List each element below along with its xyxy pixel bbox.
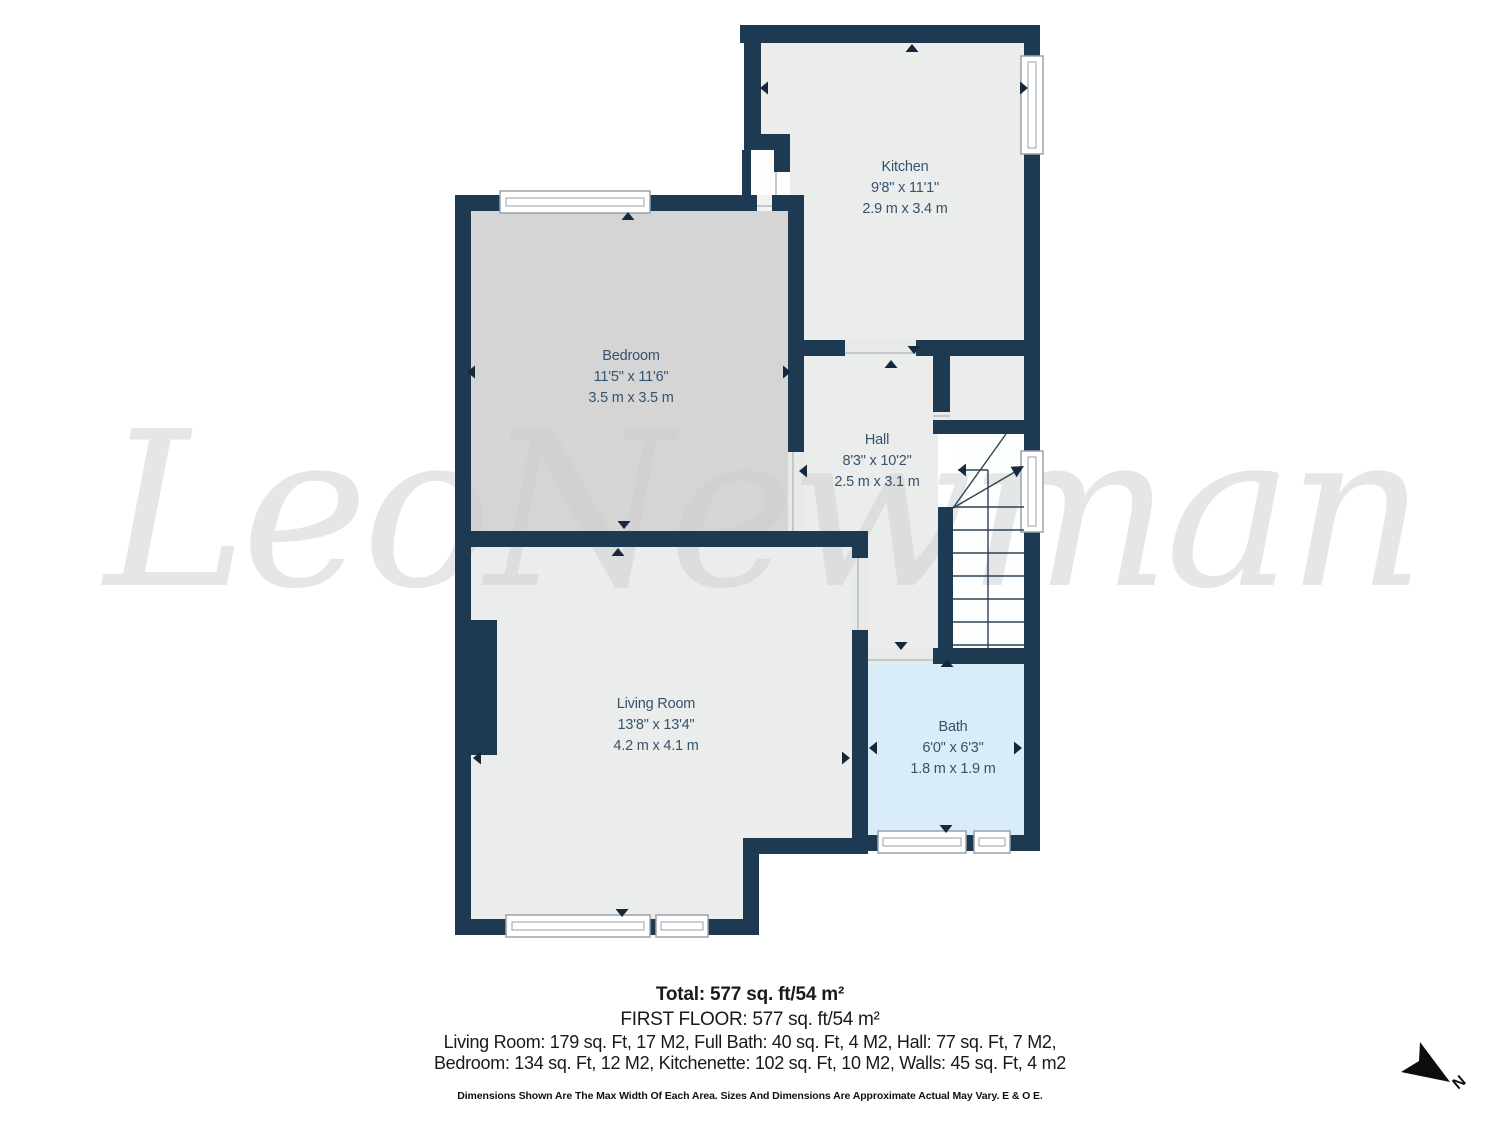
hall-metric: 2.5 m x 3.1 m	[834, 472, 919, 493]
living-window-wide	[506, 915, 650, 937]
hall-name: Hall	[834, 430, 919, 451]
living-room-label: Living Room 13'8" x 13'4" 4.2 m x 4.1 m	[613, 694, 698, 757]
stairs-window	[1021, 451, 1043, 532]
floorplan-page: LeoNewman	[0, 0, 1500, 1125]
watermark-text: LeoNewman	[100, 385, 1419, 636]
floor-area-text: FIRST FLOOR: 577 sq. ft/54 m²	[0, 1007, 1500, 1032]
bath-metric: 1.8 m x 1.9 m	[910, 759, 995, 780]
room-areas-line-1: Living Room: 179 sq. Ft, 17 M2, Full Bat…	[0, 1032, 1500, 1053]
bath-label: Bath 6'0" x 6'3" 1.8 m x 1.9 m	[910, 717, 995, 780]
room-areas-line-2: Bedroom: 134 sq. Ft, 12 M2, Kitchenette:…	[0, 1053, 1500, 1074]
living-room-name: Living Room	[613, 694, 698, 715]
hall-imperial: 8'3" x 10'2"	[834, 451, 919, 472]
kitchen-label: Kitchen 9'8" x 11'1" 2.9 m x 3.4 m	[862, 157, 947, 220]
north-arrow-icon: N	[1398, 1032, 1488, 1112]
bath-imperial: 6'0" x 6'3"	[910, 738, 995, 759]
bedroom-imperial: 11'5" x 11'6"	[588, 367, 673, 388]
disclaimer-text: Dimensions Shown Are The Max Width Of Ea…	[0, 1090, 1500, 1102]
bath-window-wide	[878, 831, 966, 853]
kitchen-metric: 2.9 m x 3.4 m	[862, 199, 947, 220]
bedroom-name: Bedroom	[588, 346, 673, 367]
north-label: N	[1450, 1073, 1470, 1093]
floorplan-drawing: LeoNewman	[0, 0, 1500, 1125]
bedroom-metric: 3.5 m x 3.5 m	[588, 388, 673, 409]
kitchen-imperial: 9'8" x 11'1"	[862, 178, 947, 199]
bath-window-narrow	[974, 831, 1010, 853]
bedroom-label: Bedroom 11'5" x 11'6" 3.5 m x 3.5 m	[588, 346, 673, 409]
living-room-imperial: 13'8" x 13'4"	[613, 715, 698, 736]
total-area-text: Total: 577 sq. ft/54 m²	[0, 982, 1500, 1007]
living-window-narrow	[656, 915, 708, 937]
living-room-metric: 4.2 m x 4.1 m	[613, 736, 698, 757]
north-arrow-needle	[1401, 1042, 1450, 1082]
chimney-breast	[471, 620, 497, 755]
area-summary: Total: 577 sq. ft/54 m² FIRST FLOOR: 577…	[0, 982, 1500, 1102]
bedroom-window	[500, 191, 650, 213]
kitchen-name: Kitchen	[862, 157, 947, 178]
hall-label: Hall 8'3" x 10'2" 2.5 m x 3.1 m	[834, 430, 919, 493]
kitchen-window	[1021, 56, 1043, 154]
bath-name: Bath	[910, 717, 995, 738]
